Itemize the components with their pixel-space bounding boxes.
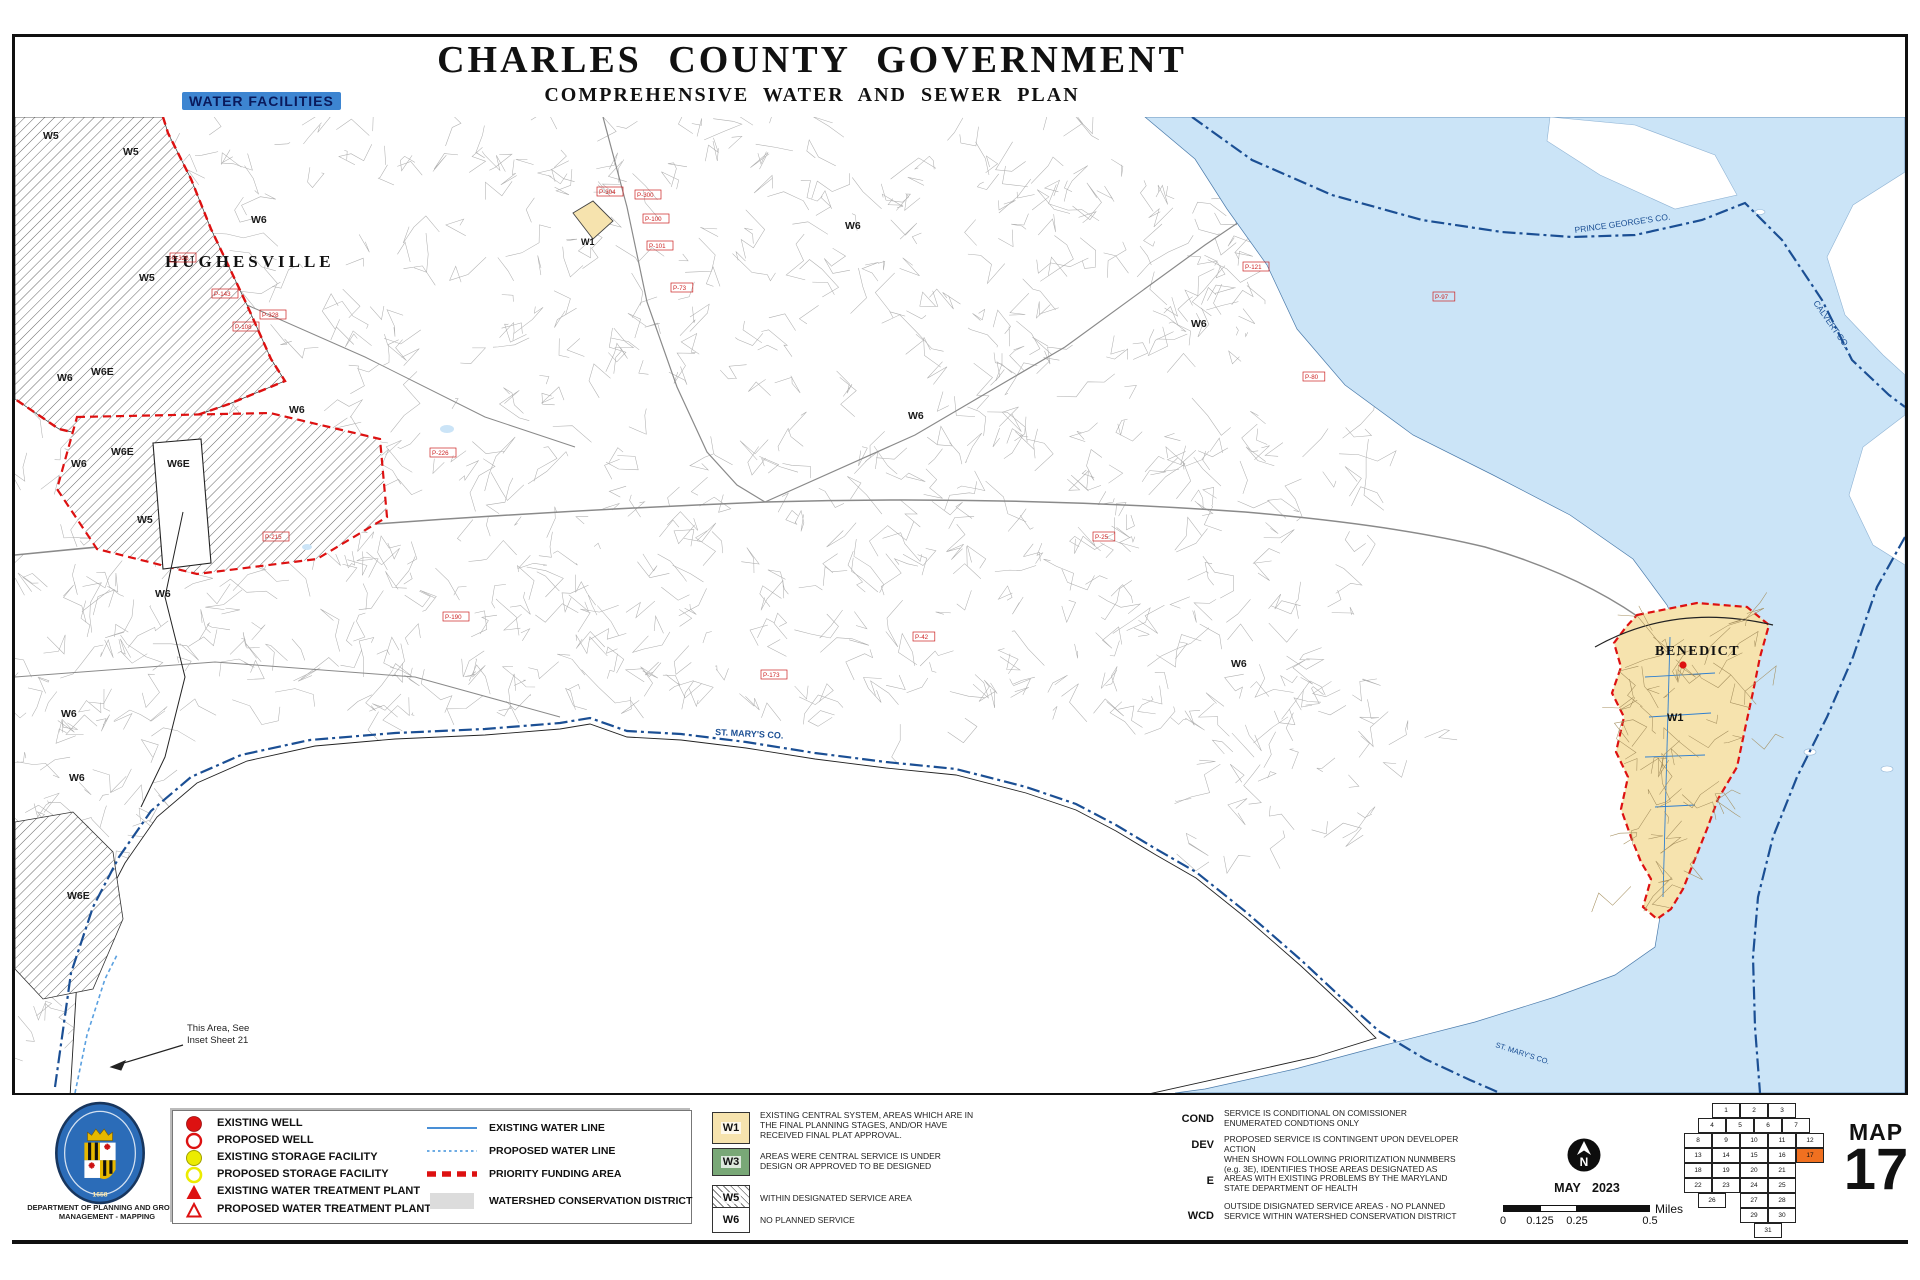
zone-label: W6E xyxy=(91,366,114,378)
zone-label: W5 xyxy=(139,272,155,284)
scale-unit: Miles xyxy=(1655,1202,1683,1216)
zone-label: W6 xyxy=(69,772,85,784)
zone-label: W6E xyxy=(167,458,190,470)
storage_proposed-icon xyxy=(185,1166,203,1184)
map-index-cell-3: 3 xyxy=(1768,1103,1796,1118)
map-index-cell-4: 4 xyxy=(1698,1118,1726,1133)
map-index-cell-24: 24 xyxy=(1740,1178,1768,1193)
map-date: MAY 2023 xyxy=(1532,1181,1642,1195)
zone-desc: EXISTING CENTRAL SYSTEM, AREAS WHICH ARE… xyxy=(760,1110,974,1140)
scale-tick: 0.5 xyxy=(1633,1215,1667,1227)
map-index-cell-2: 2 xyxy=(1740,1103,1768,1118)
parcel-id-label: P-101 xyxy=(649,243,666,250)
zone-label: W5 xyxy=(43,130,59,142)
map-index-cell-17: 17 xyxy=(1796,1148,1824,1163)
parcel-id-label: P-121 xyxy=(1245,264,1262,271)
map-canvas: HUGHESVILLE BENEDICT W1 W1 ST. MARY'S CO… xyxy=(15,117,1905,1093)
map-index-cell-19: 19 xyxy=(1712,1163,1740,1178)
definition-text: SERVICE IS CONDITIONAL ON COMISSIONER EN… xyxy=(1224,1109,1466,1128)
storage_existing-icon xyxy=(185,1149,203,1167)
legend-item-label: PROPOSED STORAGE FACILITY xyxy=(217,1168,389,1180)
legend-item-label: EXISTING WATER TREATMENT PLANT xyxy=(217,1185,420,1197)
scale-seg xyxy=(1503,1205,1540,1212)
map-index-cell-5: 5 xyxy=(1726,1118,1754,1133)
parcel-id-label: P-97 xyxy=(1435,294,1449,301)
map-index-cell-13: 13 xyxy=(1684,1148,1712,1163)
parcel-id-label: P-173 xyxy=(763,672,780,679)
wcd-icon xyxy=(425,1193,481,1209)
agency-caption: DEPARTMENT OF PLANNING AND GROWTH MANAGE… xyxy=(18,1203,196,1221)
definition-text: PROPOSED SERVICE IS CONTINGENT UPON DEVE… xyxy=(1224,1135,1466,1154)
zone-label: W6E xyxy=(67,890,90,902)
map-index-cell-8: 8 xyxy=(1684,1133,1712,1148)
legend-strip: 1658 DEPARTMENT OF PLANNING AND GROWTH M… xyxy=(12,1093,1908,1240)
definition-abbr: E xyxy=(1130,1175,1214,1187)
legend-item-label: PRIORITY FUNDING AREA xyxy=(489,1168,621,1180)
legend-item-label: PROPOSED WATER TREATMENT PLANT xyxy=(217,1203,431,1215)
definition-abbr: COND xyxy=(1130,1113,1214,1125)
zone-label: W6E xyxy=(111,446,134,458)
wtp_existing-icon xyxy=(185,1183,203,1201)
zone-desc: AREAS WERE CENTRAL SERVICE IS UNDER DESI… xyxy=(760,1151,974,1171)
water-facilities-badge: WATER FACILITIES xyxy=(182,92,341,110)
zone-chip-w1: W1 xyxy=(712,1112,750,1144)
zone-label: W6 xyxy=(57,372,73,384)
hughesville-label: HUGHESVILLE xyxy=(165,252,335,271)
zone-label: W6 xyxy=(908,410,924,422)
map-index-cell-9: 9 xyxy=(1712,1133,1740,1148)
map-index-cell-20: 20 xyxy=(1740,1163,1768,1178)
line_proposed-icon xyxy=(425,1143,481,1159)
definition-text: WHEN SHOWN FOLLOWING PRIORITIZATION NUNM… xyxy=(1224,1155,1466,1193)
benedict-existing-well-dot xyxy=(1679,661,1686,668)
inset-note-line1: This Area, See xyxy=(187,1023,249,1034)
parcel-id-label: P-190 xyxy=(445,614,462,621)
zone-label: W5 xyxy=(123,146,139,158)
map-index-grid: 1234567891011121314151617181920212223242… xyxy=(1684,1103,1844,1240)
legend-item-label: PROPOSED WELL xyxy=(217,1134,314,1146)
parcel-id-label: P-143 xyxy=(214,291,231,298)
map-index-cell-10: 10 xyxy=(1740,1133,1768,1148)
map-index-cell-15: 15 xyxy=(1740,1148,1768,1163)
scale-tick: 0 xyxy=(1486,1215,1520,1227)
parcel-id-label: P-304 xyxy=(599,189,616,196)
parcel-id-label: P-73 xyxy=(673,285,687,292)
map-number: 17 xyxy=(1842,1141,1910,1199)
zone-chip-label: W5 xyxy=(721,1192,742,1204)
zone-label: W6 xyxy=(155,588,171,600)
map-index-cell-7: 7 xyxy=(1782,1118,1810,1133)
scale-seg xyxy=(1577,1205,1650,1212)
parcel-id-label: P-42 xyxy=(915,634,929,641)
well_proposed-icon xyxy=(185,1132,203,1150)
inset-note-line2: Inset Sheet 21 xyxy=(187,1035,248,1046)
parcel-id-label: P-80 xyxy=(1305,374,1319,381)
zone-chip-w3: W3 xyxy=(712,1148,750,1176)
map-sheet: CHARLES COUNTY GOVERNMENT COMPREHENSIVE … xyxy=(0,0,1920,1280)
legend-box: EXISTING WELLPROPOSED WELLEXISTING STORA… xyxy=(172,1110,692,1224)
map-index-cell-31: 31 xyxy=(1754,1223,1782,1238)
zone-chip-label: W6 xyxy=(721,1214,742,1226)
map-index-cell-25: 25 xyxy=(1768,1178,1796,1193)
zone-label: W5 xyxy=(137,514,153,526)
zone-label: W6 xyxy=(71,458,87,470)
zone-desc: NO PLANNED SERVICE xyxy=(760,1215,974,1225)
definition-text: OUTSIDE DISIGNATED SERVICE AREAS - NO PL… xyxy=(1224,1202,1466,1221)
parcel-id-label: P-328 xyxy=(262,312,279,319)
north-arrow: N xyxy=(1564,1135,1604,1175)
map-index-cell-11: 11 xyxy=(1768,1133,1796,1148)
parcel-id-label: P-326 xyxy=(172,255,189,262)
legend-item-label: EXISTING STORAGE FACILITY xyxy=(217,1151,378,1163)
agency-line1: DEPARTMENT OF PLANNING AND GROWTH xyxy=(18,1203,196,1212)
definition-abbr: DEV xyxy=(1130,1139,1214,1151)
county-seal: 1658 xyxy=(48,1101,152,1205)
agency-line2: MANAGEMENT - MAPPING xyxy=(18,1212,196,1221)
scale-tick: 0.125 xyxy=(1523,1215,1557,1227)
zone-label: W6 xyxy=(845,220,861,232)
map-index-cell-27: 27 xyxy=(1740,1193,1768,1208)
parcel-id-label: P-108 xyxy=(235,324,252,331)
zone-label: W6 xyxy=(251,214,267,226)
map-index-cell-6: 6 xyxy=(1754,1118,1782,1133)
zone-label: W6 xyxy=(61,708,77,720)
map-area: HUGHESVILLE BENEDICT W1 W1 ST. MARY'S CO… xyxy=(15,117,1905,1093)
map-index-cell-1: 1 xyxy=(1712,1103,1740,1118)
zone-label: W6 xyxy=(1191,318,1207,330)
zone-label: W6 xyxy=(1231,658,1247,670)
scale-tick: 0.25 xyxy=(1560,1215,1594,1227)
map-index-cell-30: 30 xyxy=(1768,1208,1796,1223)
map-index-cell-26: 26 xyxy=(1698,1193,1726,1208)
scale-bar: 00.1250.250.5 Miles xyxy=(1503,1205,1703,1235)
map-index-cell-23: 23 xyxy=(1712,1178,1740,1193)
w1-benedict-label: W1 xyxy=(1667,712,1684,724)
map-index-cell-28: 28 xyxy=(1768,1193,1796,1208)
definition-abbr: WCD xyxy=(1130,1210,1214,1222)
map-index-cell-12: 12 xyxy=(1796,1133,1824,1148)
scale-seg xyxy=(1540,1205,1577,1212)
zone-chip-label: W3 xyxy=(721,1156,742,1168)
zone-desc: WITHIN DESIGNATED SERVICE AREA xyxy=(760,1193,974,1203)
page-title: CHARLES COUNTY GOVERNMENT xyxy=(12,38,1612,82)
legend-item-label: WATERSHED CONSERVATION DISTRICT xyxy=(489,1195,692,1207)
map-index-cell-18: 18 xyxy=(1684,1163,1712,1178)
map-index-cell-22: 22 xyxy=(1684,1178,1712,1193)
legend-item-label: EXISTING WELL xyxy=(217,1117,303,1129)
parcel-id-label: P-226 xyxy=(432,450,449,457)
w1-diamond-label: W1 xyxy=(581,237,595,247)
svg-text:1658: 1658 xyxy=(92,1192,107,1199)
zone-chip-label: W1 xyxy=(721,1122,742,1134)
svg-text:N: N xyxy=(1580,1155,1589,1169)
benedict-label: BENEDICT xyxy=(1655,644,1740,659)
well_existing-icon xyxy=(185,1115,203,1133)
pfa-icon xyxy=(425,1166,481,1182)
parcel-id-label: P-25 xyxy=(1095,534,1109,541)
parcel-id-label: P-300 xyxy=(637,192,654,199)
line_existing-icon xyxy=(425,1120,481,1136)
parcel-id-label: P-100 xyxy=(645,216,662,223)
zone-chip-w6: W6 xyxy=(712,1207,750,1233)
zone-label: W6 xyxy=(289,404,305,416)
parcel-id-label: P-215 xyxy=(265,534,282,541)
map-index-cell-29: 29 xyxy=(1740,1208,1768,1223)
legend-item-label: PROPOSED WATER LINE xyxy=(489,1145,615,1157)
map-index-cell-16: 16 xyxy=(1768,1148,1796,1163)
map-index-cell-21: 21 xyxy=(1768,1163,1796,1178)
legend-item-label: EXISTING WATER LINE xyxy=(489,1122,605,1134)
map-index-cell-14: 14 xyxy=(1712,1148,1740,1163)
wtp_proposed-icon xyxy=(185,1201,203,1219)
